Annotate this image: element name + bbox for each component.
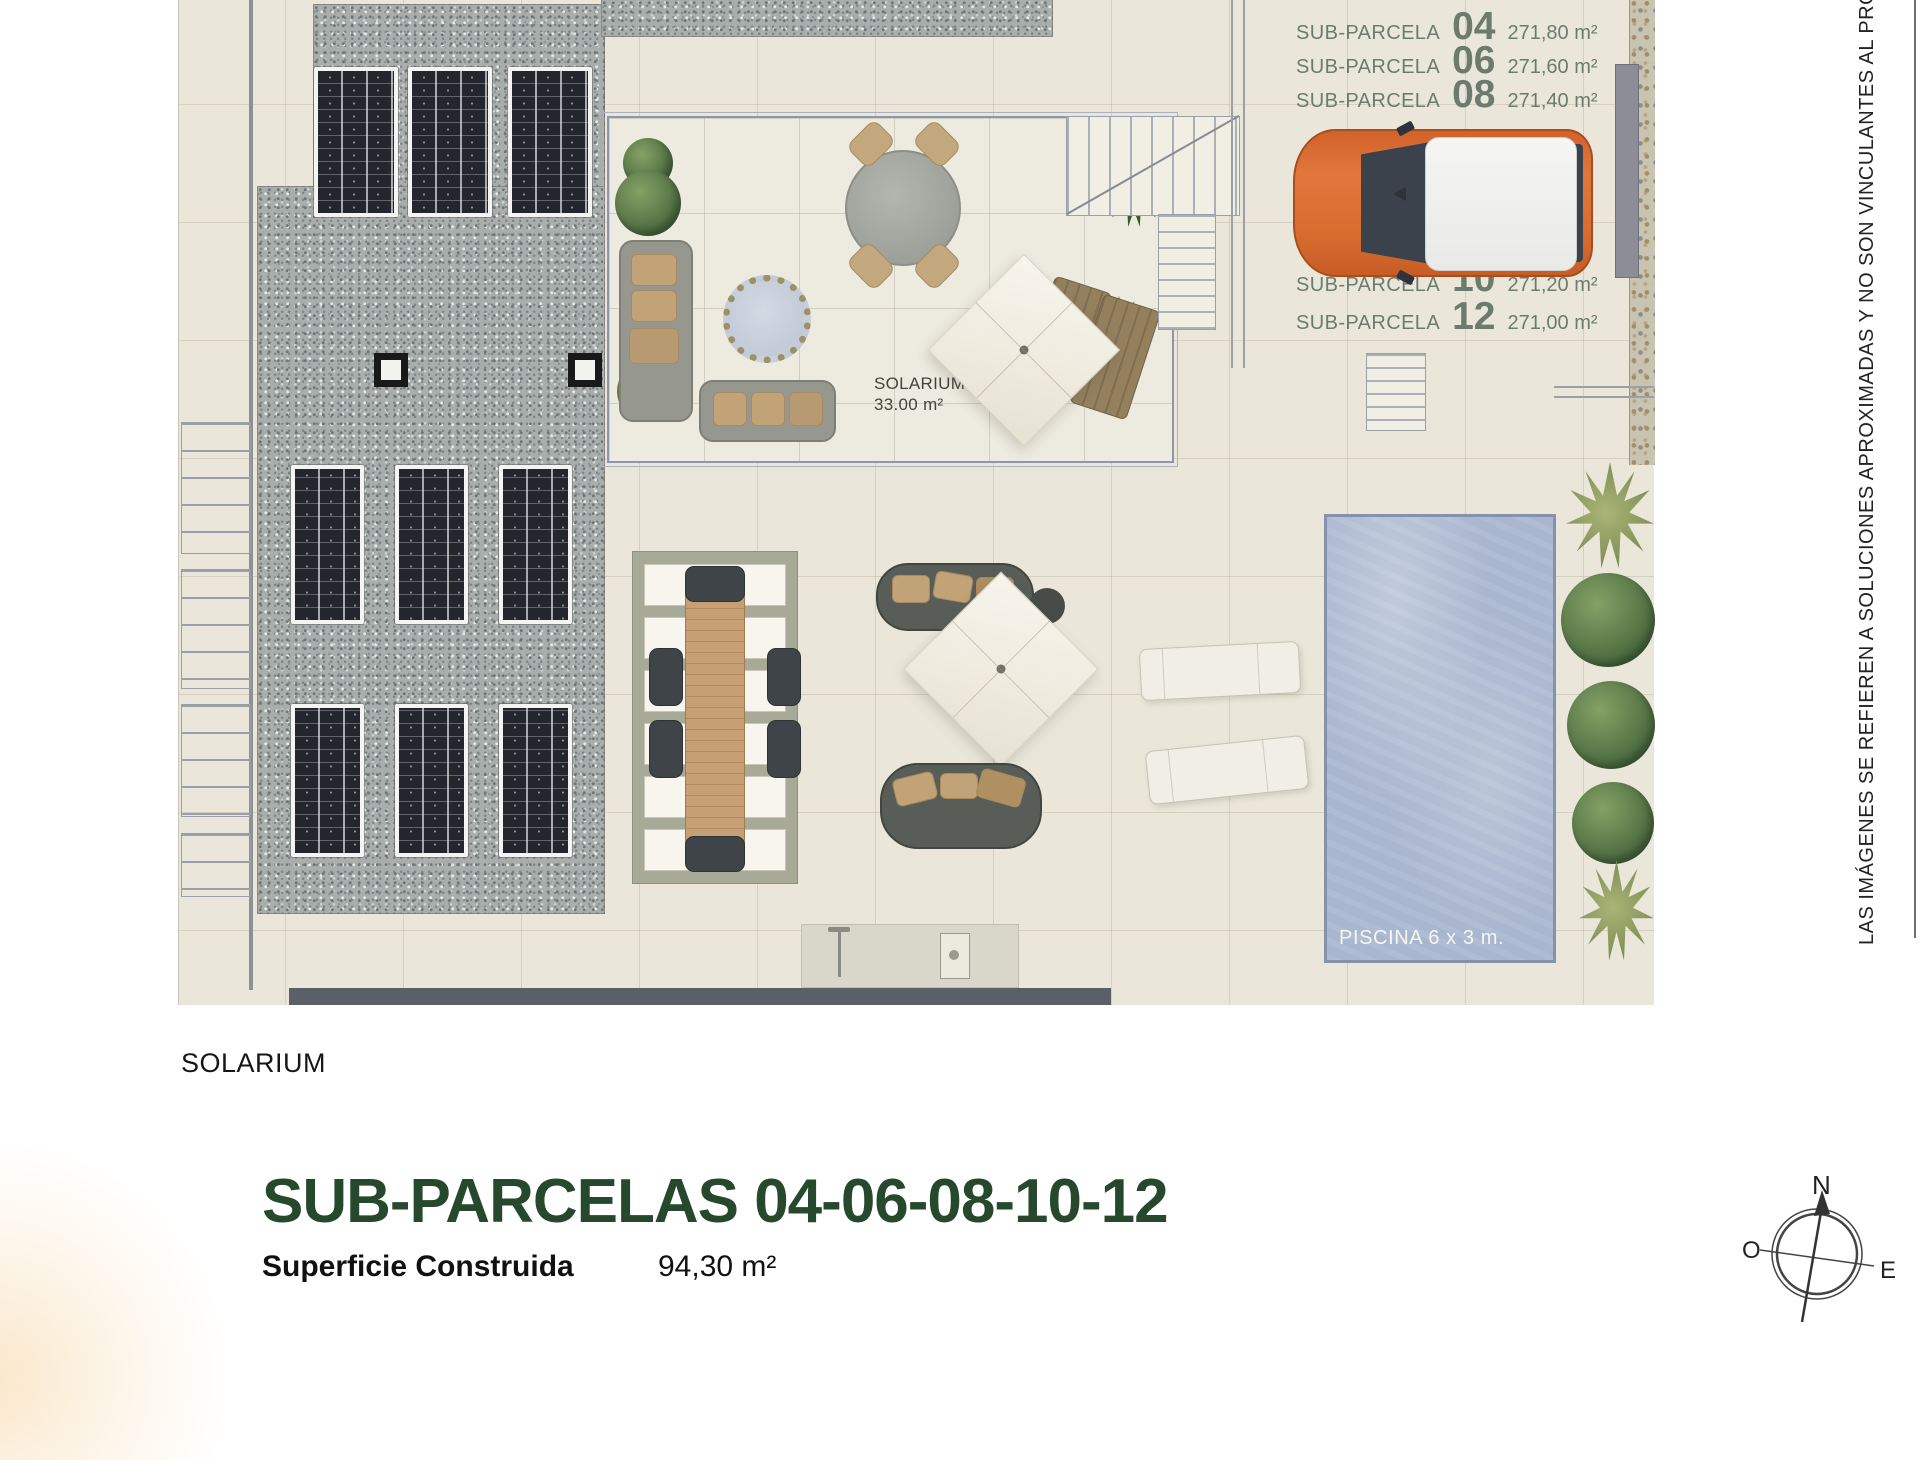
outdoor-sofa — [699, 380, 836, 442]
chair — [685, 566, 745, 602]
sofa-cushion — [891, 770, 939, 807]
surface-built-label: Superficie Construida — [262, 1250, 574, 1284]
surface-built-value: 94,30 m² — [658, 1250, 776, 1284]
solarium-name: SOLARIUM — [874, 373, 965, 394]
sofa-cushion — [631, 290, 677, 322]
parcel-number: 08 — [1452, 78, 1495, 112]
page-title: SUB-PARCELAS 04-06-08-10-12 — [262, 1166, 1168, 1237]
chair — [649, 720, 683, 778]
parcel-prefix: SUB-PARCELA — [1296, 56, 1440, 79]
decorative-corner-glow — [0, 1130, 240, 1460]
sofa-cushion — [751, 392, 785, 426]
neighbor-stairs — [181, 833, 251, 897]
outdoor-sofa — [880, 763, 1042, 849]
chair — [767, 720, 801, 778]
solar-panel — [291, 465, 364, 624]
parcel-area: 271,80 m² — [1507, 22, 1597, 45]
sofa-cushion — [932, 570, 974, 604]
wall-line — [1231, 0, 1245, 368]
sun-lounger — [1145, 735, 1310, 805]
chair — [767, 648, 801, 706]
chair — [649, 648, 683, 706]
parcel-area: 271,20 m² — [1507, 274, 1597, 297]
sofa-cushion — [975, 767, 1027, 809]
staircase — [1066, 116, 1240, 216]
floor-name-label: SOLARIUM — [181, 1048, 326, 1079]
parasol-pole — [995, 663, 1008, 676]
solar-panel — [314, 67, 398, 217]
utility-pad — [801, 924, 1019, 988]
chair — [685, 836, 745, 872]
sofa-cushion — [892, 575, 930, 603]
solar-panel — [408, 67, 492, 217]
swimming-pool: PISCINA 6 x 3 m. — [1324, 514, 1556, 963]
solar-panel — [499, 704, 572, 857]
solar-panel — [508, 67, 592, 217]
parcel-row: SUB-PARCELA 06 271,60 m² — [1296, 44, 1598, 78]
ornamental-grass — [1566, 462, 1654, 574]
roof-vent — [568, 353, 602, 387]
sofa-cushion — [940, 773, 978, 799]
parasol-pole — [1018, 344, 1031, 357]
parcel-label-group-top: SUB-PARCELA 04 271,80 m² SUB-PARCELA 06 … — [1296, 10, 1598, 112]
neighbor-stairs — [181, 704, 251, 817]
solarium-area-label: SOLARIUM 33.00 m² — [874, 373, 965, 415]
parcel-row: SUB-PARCELA 12 271,00 m² — [1296, 300, 1598, 334]
tree-icon — [1567, 681, 1655, 769]
compass-rose: N O E — [1742, 1162, 1912, 1322]
parcel-number: 12 — [1452, 300, 1495, 334]
legal-disclaimer-vertical: LAS IMÁGENES SE REFIEREN A SOLUCIONES AP… — [1856, 0, 1892, 945]
staircase — [1366, 353, 1426, 431]
shower-icon — [838, 931, 841, 977]
parcel-prefix: SUB-PARCELA — [1296, 90, 1440, 113]
compass-needle — [1802, 1206, 1822, 1322]
page-border-line — [1914, 0, 1916, 938]
solar-panel — [395, 704, 468, 857]
solarium-area: 33.00 m² — [874, 394, 965, 415]
parcel-prefix: SUB-PARCELA — [1296, 274, 1440, 297]
roof-vent — [374, 353, 408, 387]
pool-label: PISCINA 6 x 3 m. — [1339, 927, 1504, 950]
parcel-row: SUB-PARCELA 08 271,40 m² — [1296, 78, 1598, 112]
plant-icon — [615, 170, 681, 236]
solar-panel — [291, 704, 364, 857]
sofa-cushion — [629, 328, 679, 364]
floor-plan: SOLARIUM 33.00 m² SUB-PARCELA 04 271,80 … — [178, 0, 1654, 1005]
drain-icon — [940, 933, 970, 979]
solar-panel — [499, 465, 572, 624]
staircase-direction-line — [1067, 115, 1240, 215]
parcel-area: 271,40 m² — [1507, 90, 1597, 113]
car-roof — [1425, 137, 1577, 271]
ornamental-grass — [1579, 860, 1654, 966]
parcel-prefix: SUB-PARCELA — [1296, 22, 1440, 45]
compass-west-label: O — [1742, 1237, 1761, 1264]
solar-panel — [395, 465, 468, 624]
car-windshield — [1361, 139, 1433, 267]
wall-line — [1554, 386, 1654, 398]
facade-wall — [289, 988, 1111, 1005]
car-roof-antenna — [1393, 187, 1406, 201]
neighbor-stairs — [181, 422, 251, 554]
compass-north-label: N — [1812, 1170, 1831, 1200]
gravel-roof-strip — [601, 0, 1053, 37]
round-rug — [723, 275, 811, 363]
outdoor-sofa — [619, 240, 693, 422]
garden-wall — [1615, 64, 1639, 278]
staircase — [1158, 214, 1216, 330]
sofa-cushion — [789, 392, 823, 426]
tree-icon — [1572, 782, 1654, 864]
neighbor-stairs — [181, 569, 251, 689]
dining-table-wood — [685, 586, 745, 852]
car-icon — [1293, 129, 1593, 277]
parcel-prefix: SUB-PARCELA — [1296, 312, 1440, 335]
page: { "colors": { "title_green": "#26482c", … — [0, 0, 1920, 1280]
parcel-area: 271,00 m² — [1507, 312, 1597, 335]
sofa-cushion — [713, 392, 747, 426]
parcel-area: 271,60 m² — [1507, 56, 1597, 79]
sofa-cushion — [631, 254, 677, 286]
sun-lounger — [1139, 641, 1302, 701]
parcel-row: SUB-PARCELA 04 271,80 m² — [1296, 10, 1598, 44]
tree-icon — [1561, 573, 1655, 667]
